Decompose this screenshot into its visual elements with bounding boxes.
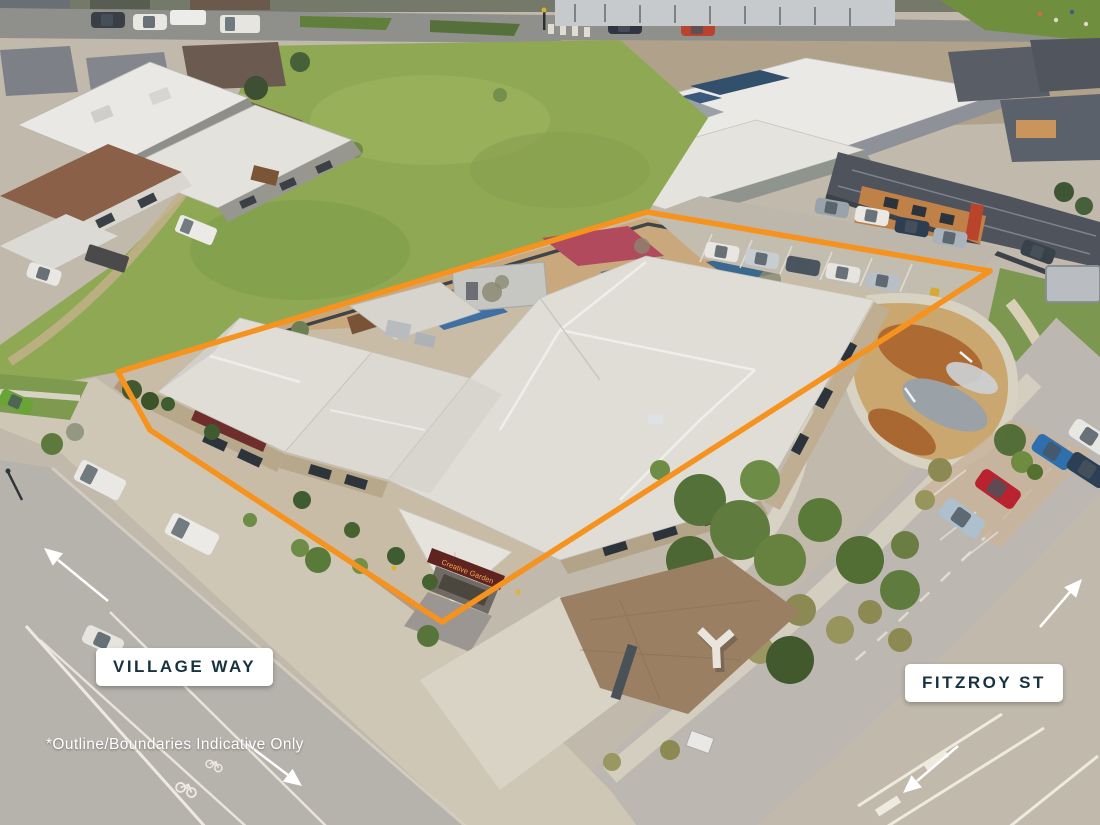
boundary-disclaimer-text: *Outline/Boundaries Indicative Only [46, 736, 304, 754]
street-label-fitzroy-st: FITZROY ST [905, 664, 1063, 702]
pergola [1046, 266, 1100, 302]
aerial-property-photo: Creative Garden [0, 0, 1100, 825]
street-label-village-way: VILLAGE WAY [96, 648, 273, 686]
